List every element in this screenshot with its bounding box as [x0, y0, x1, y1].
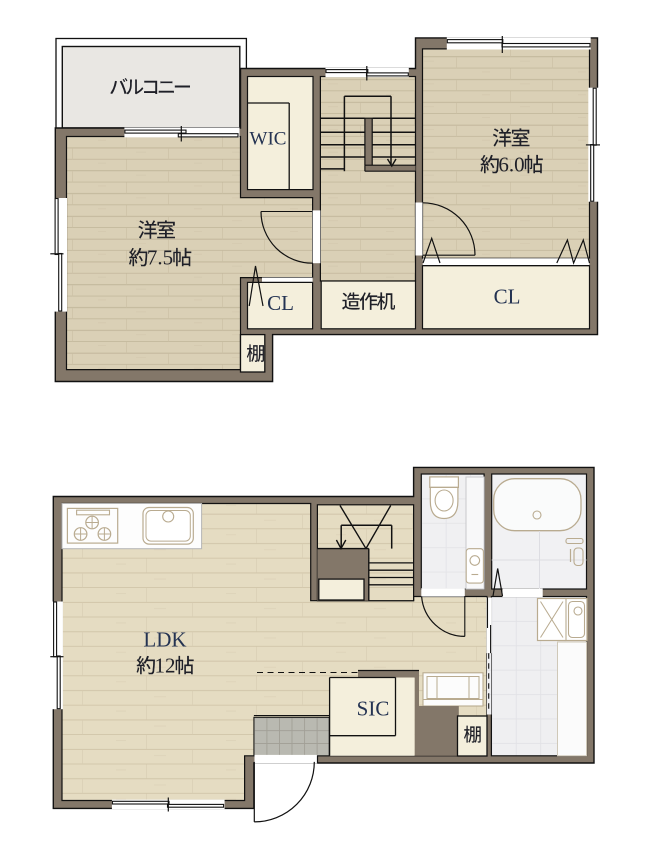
svg-text:CL: CL	[494, 285, 521, 309]
svg-text:CL: CL	[267, 291, 294, 315]
svg-text:WIC: WIC	[250, 129, 287, 150]
svg-text:7.5: 7.5	[147, 245, 173, 269]
svg-text:6.0: 6.0	[498, 152, 524, 176]
svg-text:SIC: SIC	[357, 697, 390, 721]
svg-text:LDK: LDK	[143, 628, 186, 652]
svg-text:12: 12	[155, 653, 176, 677]
